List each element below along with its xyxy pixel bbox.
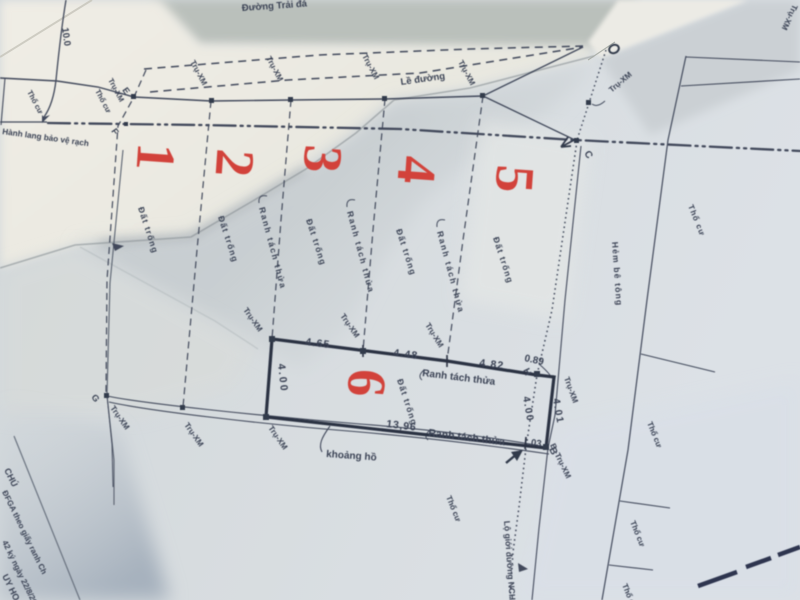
svg-text:6: 6 — [336, 367, 399, 399]
svg-text:5: 5 — [484, 163, 547, 195]
svg-text:3: 3 — [292, 143, 355, 175]
svg-text:4: 4 — [386, 154, 449, 186]
svg-text:1: 1 — [125, 141, 188, 173]
svg-text:2: 2 — [204, 147, 267, 179]
svg-text:.03: .03 — [528, 437, 543, 450]
